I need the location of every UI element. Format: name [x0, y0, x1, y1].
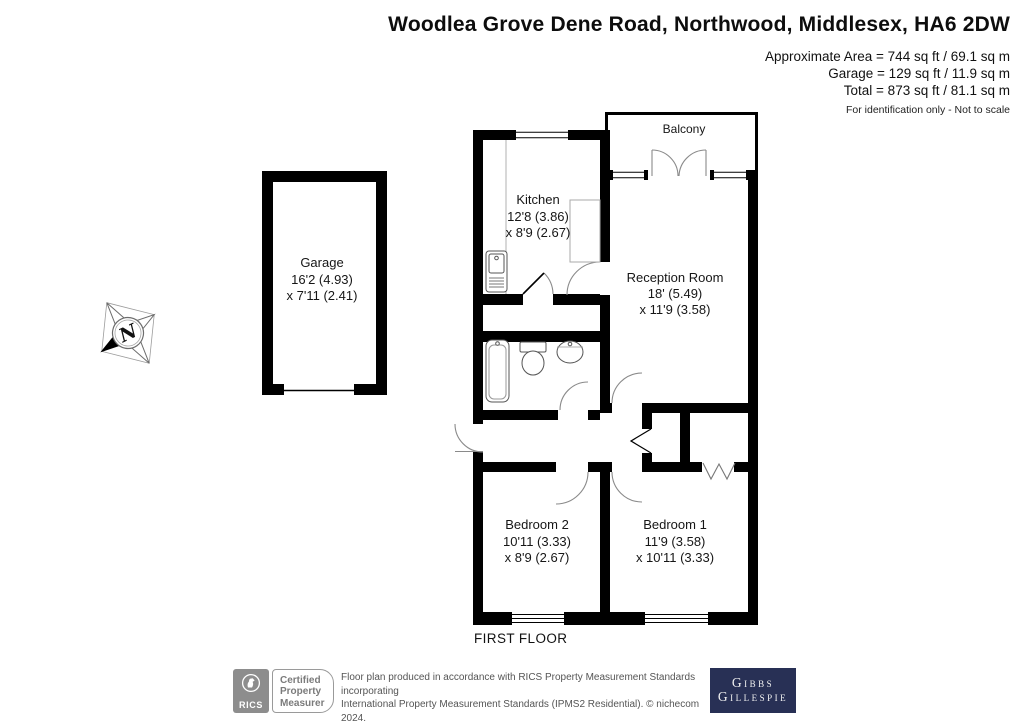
- kitchen-sink: [486, 251, 507, 292]
- footer-disclaimer: Floor plan produced in accordance with R…: [341, 671, 703, 724]
- room-label-kitchen: Kitchen: [516, 192, 559, 207]
- rics-logo: RICS: [233, 669, 269, 713]
- room-label-bedroom2: Bedroom 2: [505, 517, 569, 532]
- svg-text:12'8 (3.86): 12'8 (3.86): [507, 209, 569, 224]
- bedroom1-door-opening: [612, 462, 642, 472]
- svg-text:16'2 (4.93): 16'2 (4.93): [291, 272, 353, 287]
- reception-window-right: [714, 170, 746, 180]
- bathtub: [486, 340, 509, 402]
- disclaimer-line: International Property Measurement Stand…: [341, 698, 703, 724]
- landing-door-opening: [523, 294, 553, 305]
- svg-text:x 10'11 (3.33): x 10'11 (3.33): [636, 550, 714, 565]
- rics-brand: RICS: [233, 700, 269, 710]
- room-label-garage: Garage: [300, 255, 343, 270]
- gibbs-gillespie-logo: Gibbs Gillespie: [710, 668, 796, 713]
- certified-property-measurer-badge: Certified Property Measurer: [272, 669, 334, 713]
- svg-text:x 8'9 (2.67): x 8'9 (2.67): [505, 550, 570, 565]
- floorplan-page: Woodlea Grove Dene Road, Northwood, Midd…: [0, 0, 1024, 724]
- toilet: [520, 342, 546, 375]
- room-label-reception: Reception Room: [627, 270, 724, 285]
- bathroom-fixtures: [486, 340, 583, 402]
- reception-window-left: [613, 170, 644, 180]
- room-label-balcony: Balcony: [663, 122, 706, 136]
- disclaimer-line: Floor plan produced in accordance with R…: [341, 671, 703, 698]
- basin: [557, 341, 583, 363]
- bathroom-door-opening: [558, 410, 588, 420]
- garage-door: [284, 384, 354, 395]
- svg-text:x 11'9 (3.58): x 11'9 (3.58): [640, 302, 711, 317]
- reception-door-opening: [612, 403, 642, 413]
- bedroom2-door-opening: [556, 462, 588, 472]
- brand-line-gillespie: Gillespie: [710, 690, 796, 704]
- svg-text:x 7'11 (2.41): x 7'11 (2.41): [287, 288, 358, 303]
- cert-line: Measurer: [273, 698, 333, 710]
- cert-line: Property: [273, 686, 333, 698]
- svg-text:18' (5.49): 18' (5.49): [648, 286, 703, 301]
- floor-label: FIRST FLOOR: [474, 631, 567, 646]
- compass-icon: N: [81, 284, 176, 381]
- brand-line-gibbs: Gibbs: [710, 676, 796, 690]
- floor-plan: N: [0, 0, 1024, 724]
- svg-text:11'9 (3.58): 11'9 (3.58): [645, 534, 706, 549]
- svg-text:x 8'9 (2.67): x 8'9 (2.67): [506, 225, 571, 240]
- cert-line: Certified: [273, 670, 333, 686]
- kitchen-window: [516, 130, 568, 140]
- kitchen-counter: [570, 200, 600, 262]
- kitchen-door-opening: [600, 262, 610, 295]
- rics-lion-icon: [241, 673, 261, 693]
- svg-text:10'11 (3.33): 10'11 (3.33): [503, 534, 571, 549]
- room-label-bedroom1: Bedroom 1: [643, 517, 707, 532]
